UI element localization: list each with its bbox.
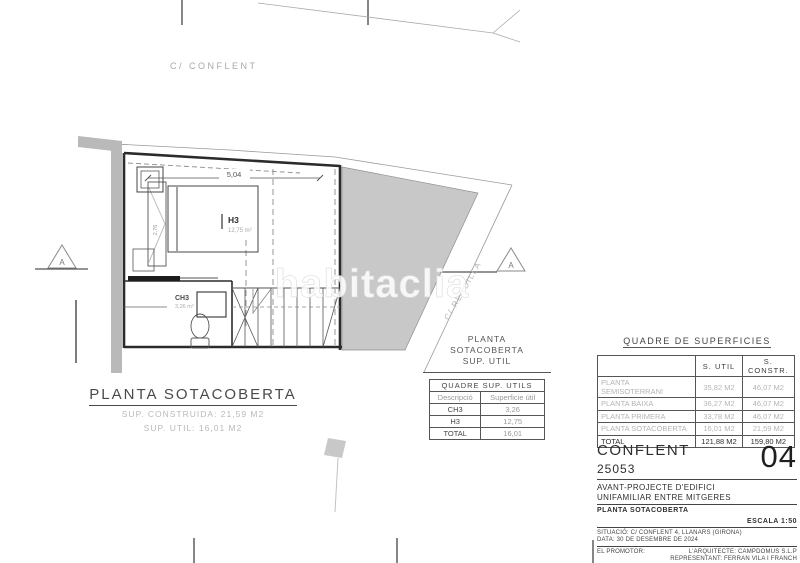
util-col-desc: Descripció	[430, 392, 481, 404]
shower-fixture	[197, 292, 226, 317]
toilet	[191, 314, 209, 348]
title-block-divider	[597, 479, 797, 480]
room-labels: H3 12,75 m² CH3 3,26 m²	[175, 214, 252, 310]
project-name: CONFLENT	[597, 442, 690, 459]
street-label-conflent: C/ CONFLENT	[170, 61, 258, 71]
party-wall	[78, 136, 122, 373]
util-table-title: QUADRE SUP. UTILS	[430, 380, 545, 392]
table-row: PLANTA SEMISOTERRANI 35,82 M2 46,07 M2	[598, 377, 795, 398]
util-row-desc: TOTAL	[430, 428, 481, 440]
surfaces-row-util: 16,01 M2	[696, 423, 742, 436]
surfaces-row-constr: 46,07 M2	[742, 398, 794, 411]
project-description-line1: AVANT-PROJECTE D'EDIFICI	[597, 483, 797, 493]
shaft	[133, 249, 154, 271]
surfaces-table-block: QUADRE DE SUPERFICIES S. UTIL S. CONSTR.…	[597, 336, 797, 448]
wardrobe	[148, 182, 166, 266]
data-line: DATA: 30 DE DESEMBRE DE 2024	[597, 537, 797, 544]
surfaces-col-constr: S. CONSTR.	[742, 356, 794, 377]
parcel-diagonal-lines	[258, 3, 520, 42]
bed	[168, 186, 258, 252]
project-description-line2: UNIFAMILIAR ENTRE MITGERES	[597, 493, 797, 503]
room-h3-label: H3	[228, 215, 239, 225]
surfaces-row-constr: 46,07 M2	[742, 377, 794, 398]
table-row: H3 12,75	[430, 416, 545, 428]
util-row-value: 16,01	[481, 428, 545, 440]
table-row: TOTAL 16,01	[430, 428, 545, 440]
arquitecte-label: L'ARQUITECTE: CAMPDOMUS S.L.P	[670, 549, 797, 556]
util-row-value: 12,75	[481, 416, 545, 428]
surfaces-row-constr: 46,07 M2	[742, 410, 794, 423]
surfaces-row-label: PLANTA SOTACOBERTA	[598, 423, 696, 436]
table-row: PLANTA PRIMERA 33,78 M2 46,07 M2	[598, 410, 795, 423]
util-heading-line1: PLANTA	[423, 334, 551, 345]
section-letter: A	[508, 261, 514, 270]
plan-title: PLANTA SOTACOBERTA	[89, 386, 296, 406]
util-heading-line3: SUP. UTIL	[423, 356, 551, 367]
title-block-divider	[597, 504, 797, 505]
dimension-width: 5,04	[145, 169, 323, 181]
promotor-label: EL PROMOTOR:	[597, 549, 645, 563]
representant-label: REPRESENTANT: FERRAN VILA I FRANCH	[670, 556, 797, 563]
room-h3-area: 12,75 m²	[228, 228, 252, 234]
room-ch3-area: 3,26 m²	[175, 304, 194, 310]
title-block: CONFLENT 25053 04 AVANT-PROJECTE D'EDIFI…	[597, 442, 797, 563]
situacio-line: SITUACIÓ: C/ CONFLENT 4, LLANARS (GIRONA…	[597, 530, 797, 537]
dimension-width-label: 5,04	[227, 170, 242, 179]
project-number: 25053	[597, 462, 690, 476]
plan-sup-util: SUP. UTIL: 16,01 M2	[88, 423, 298, 434]
bathroom-partition	[124, 276, 232, 347]
util-table-block: PLANTA SOTACOBERTA SUP. UTIL QUADRE SUP.…	[423, 334, 551, 440]
surfaces-row-util: 35,82 M2	[696, 377, 742, 398]
util-row-value: 3,26	[481, 404, 545, 416]
roof-terrace-area	[342, 167, 478, 350]
cabinet	[137, 167, 163, 192]
title-block-divider	[597, 546, 797, 547]
surfaces-row-util: 36,27 M2	[696, 398, 742, 411]
section-marker-left: A	[35, 245, 88, 269]
sheet-number: 04	[761, 442, 797, 472]
table-row: PLANTA SOTACOBERTA 16,01 M2 21,59 M2	[598, 423, 795, 436]
util-table: QUADRE SUP. UTILS Descripció Superficie …	[429, 379, 545, 440]
table-row: CH3 3,26	[430, 404, 545, 416]
util-divider	[423, 372, 551, 373]
surfaces-table-title: QUADRE DE SUPERFICIES	[623, 336, 771, 348]
plan-title-block: PLANTA SOTACOBERTA SUP. CONSTRUIDA: 21,5…	[88, 386, 298, 434]
title-block-divider	[597, 527, 797, 528]
surfaces-row-label: PLANTA SEMISOTERRANI	[598, 377, 696, 398]
surfaces-row-util: 33,78 M2	[696, 410, 742, 423]
util-row-desc: CH3	[430, 404, 481, 416]
surfaces-row-constr: 21,59 M2	[742, 423, 794, 436]
parcel-boundary-lines	[182, 0, 368, 25]
section-letter: A	[59, 258, 65, 267]
drawing-sheet: C/ CONFLENT	[0, 0, 800, 563]
surfaces-row-label: PLANTA BAIXA	[598, 398, 696, 411]
scale-label: ESCALA 1:50	[597, 518, 797, 525]
surfaces-col-util: S. UTIL	[696, 356, 742, 377]
util-col-sup: Superficie útil	[481, 392, 545, 404]
util-row-desc: H3	[430, 416, 481, 428]
room-ch3-label: CH3	[175, 295, 189, 302]
surfaces-row-label: PLANTA PRIMERA	[598, 410, 696, 423]
surfaces-table: S. UTIL S. CONSTR. PLANTA SEMISOTERRANI …	[597, 355, 795, 448]
dimension-bed-label: 2,76	[153, 225, 159, 236]
bottom-boundary-ticks	[194, 538, 593, 563]
north-or-detail-marker	[324, 438, 346, 512]
util-heading-line2: SOTACOBERTA	[423, 345, 551, 356]
table-row: PLANTA BAIXA 36,27 M2 46,07 M2	[598, 398, 795, 411]
watermark: habitaclia	[275, 262, 470, 306]
plan-sup-construida: SUP. CONSTRUIDA: 21,59 M2	[88, 409, 298, 420]
sheet-title: PLANTA SOTACOBERTA	[597, 507, 797, 514]
